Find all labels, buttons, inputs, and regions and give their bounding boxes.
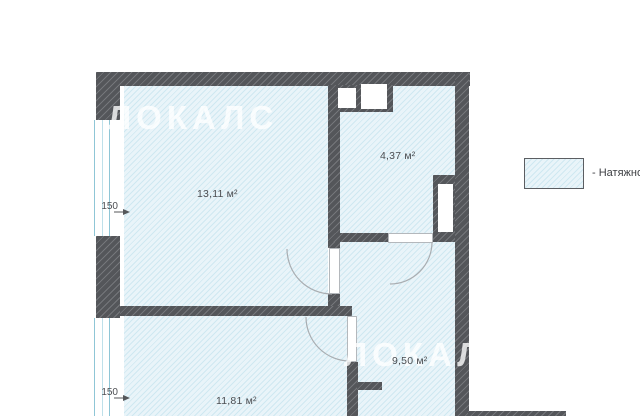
- wall-divider-horizontal: [120, 306, 352, 316]
- floor-plan-canvas: ЛОКАЛС ЛОКАЛС 13,11 м² 4,37 м² 9,50 м² 1…: [0, 0, 640, 416]
- door-opening-room1: [329, 248, 340, 294]
- wall-pillar-left: [96, 236, 120, 318]
- wall-niche-right: [438, 184, 453, 232]
- room-3-area-label: 9,50 м²: [392, 355, 427, 367]
- window-left-lower: [94, 318, 110, 416]
- window-left-upper: [94, 120, 110, 236]
- wall-room2-bottom: [328, 233, 388, 242]
- dimension-150-upper: 150: [88, 201, 118, 212]
- door-opening-room2: [388, 233, 433, 243]
- dimension-150-lower: 150: [88, 387, 118, 398]
- watermark-top: ЛОКАЛС: [108, 99, 278, 137]
- room-1-area-label: 13,11 м²: [197, 188, 238, 200]
- room-4-area-label: 11,81 м²: [216, 395, 257, 407]
- legend-label: - Натяжно: [592, 167, 640, 179]
- wall-top: [96, 72, 470, 86]
- shaft-niche-1: [338, 88, 356, 108]
- shaft-niche-2: [361, 84, 387, 109]
- legend-swatch: [524, 158, 584, 189]
- watermark-bottom: ЛОКАЛС: [344, 336, 514, 374]
- wall-stub-bottom: [357, 382, 382, 390]
- room-2-area-label: 4,37 м²: [380, 150, 415, 162]
- wall-divider-vertical-upper: [328, 85, 340, 248]
- wall-bottom-right: [468, 411, 566, 416]
